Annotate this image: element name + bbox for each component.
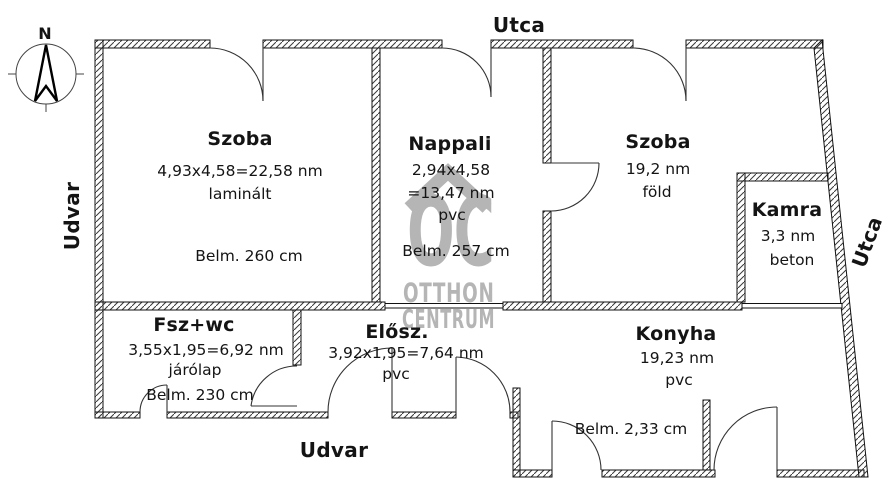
- room-area-konyha: 19,23 nm: [640, 350, 714, 367]
- room-dimensions-szoba1: 4,93x4,58=22,58 nm: [157, 163, 322, 180]
- room-name-elosz: Elősz.: [365, 322, 428, 343]
- room-height-nappali: Belm. 257 cm: [402, 243, 510, 260]
- room-floor-fszwc: járólap: [169, 362, 222, 379]
- room-height-fszwc: Belm. 230 cm: [146, 387, 254, 404]
- door-height-konyha: Belm. 2,33 cm: [575, 421, 688, 438]
- room-name-kamra: Kamra: [752, 200, 823, 221]
- street-label-top: Utca: [493, 14, 545, 36]
- room-floor-szoba2: föld: [642, 184, 671, 201]
- room-name-szoba2: Szoba: [625, 132, 690, 153]
- room-dimensions-fszwc: 3,55x1,95=6,92 nm: [128, 342, 284, 359]
- room-floor-szoba1: laminált: [209, 186, 272, 203]
- room-floor-elosz: pvc: [382, 366, 410, 383]
- room-height-szoba1: Belm. 260 cm: [195, 248, 303, 265]
- yard-label-bottom: Udvar: [300, 439, 368, 461]
- room-name-fszwc: Fsz+wc: [153, 315, 234, 336]
- room-floor-konyha: pvc: [665, 372, 693, 389]
- room-area-szoba2: 19,2 nm: [626, 161, 690, 178]
- room-floor-nappali: pvc: [438, 207, 466, 224]
- room-dimensions-elosz: 3,92x1,95=7,64 nm: [328, 345, 484, 362]
- room-dimensions-nappali-2: =13,47 nm: [407, 185, 494, 202]
- watermark-line1: OTTHON: [403, 280, 495, 307]
- floor-plan: OC OTTHON CENTRUM: [0, 0, 896, 500]
- room-floor-kamra: beton: [770, 252, 815, 269]
- room-dimensions-nappali-1: 2,94x4,58: [412, 162, 490, 179]
- room-name-nappali: Nappali: [408, 134, 491, 155]
- compass-north-label: N: [38, 25, 51, 43]
- room-area-kamra: 3,3 nm: [761, 228, 816, 245]
- room-name-konyha: Konyha: [636, 324, 717, 345]
- room-name-szoba1: Szoba: [207, 129, 272, 150]
- yard-label-left: Udvar: [61, 182, 83, 250]
